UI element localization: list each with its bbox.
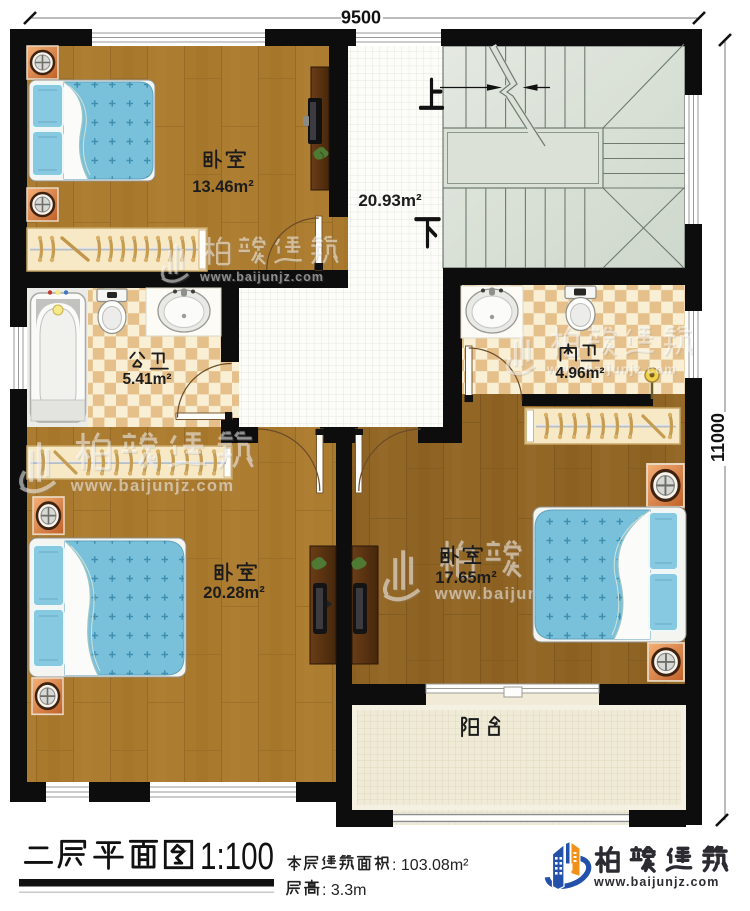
svg-text:9500: 9500 (341, 8, 381, 28)
svg-text:: 3.3m: : 3.3m (322, 882, 366, 899)
svg-text:5.41m²: 5.41m² (122, 371, 171, 388)
svg-text:: 103.08m²: : 103.08m² (392, 857, 469, 874)
svg-text:11000: 11000 (708, 413, 728, 462)
svg-text:13.46m²: 13.46m² (192, 178, 254, 196)
svg-text:4.96m²: 4.96m² (555, 365, 604, 382)
svg-text:17.65m²: 17.65m² (435, 569, 497, 587)
svg-text:www.baijunjz.com: www.baijunjz.com (593, 875, 719, 889)
svg-text:1:100: 1:100 (200, 836, 274, 878)
svg-text:20.28m²: 20.28m² (203, 584, 265, 602)
svg-text:20.93m²: 20.93m² (358, 191, 422, 210)
